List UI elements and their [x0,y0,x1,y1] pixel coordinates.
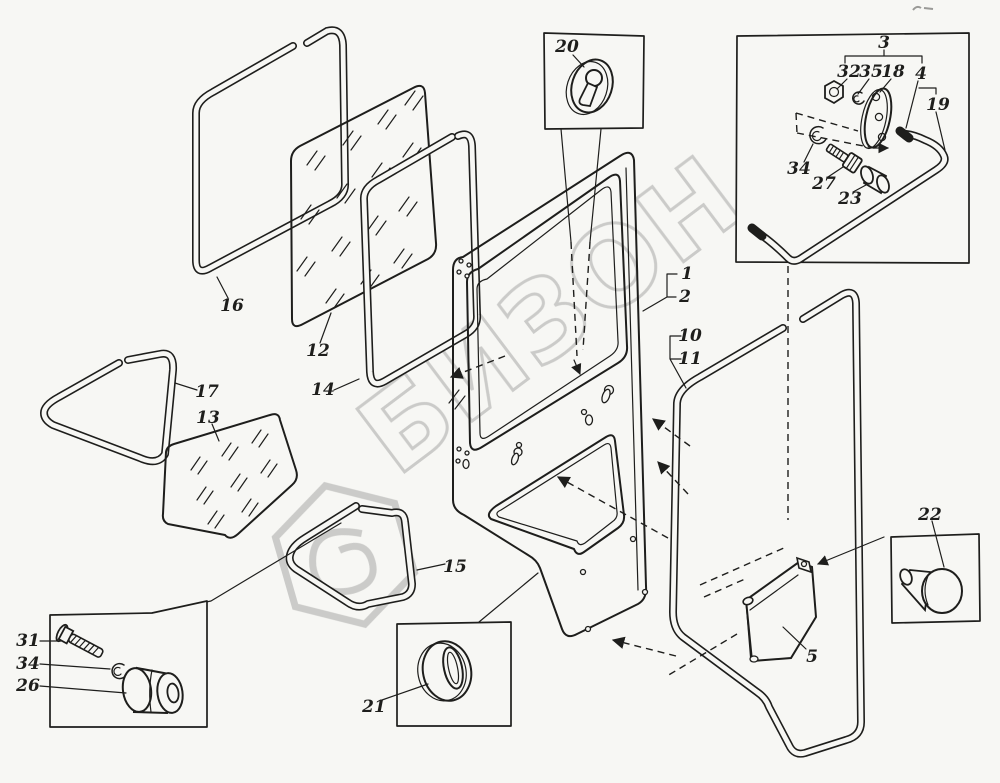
glass-13 [163,414,297,538]
callout-16: 16 [220,296,244,316]
callout-13: 13 [196,408,220,428]
callout-12: 12 [306,341,330,361]
callout-31: 31 [16,631,40,651]
seal-frame-17 [44,354,173,462]
seal-frame-16 [196,30,345,270]
callout-10: 10 [678,326,702,346]
callout-34-lower: 34 [16,654,40,674]
callout-4: 4 [915,64,927,84]
callout-20: 20 [554,37,579,57]
diagram-canvas: БИЗОН [0,0,1000,783]
callout-21: 21 [361,697,386,717]
nut-32 [825,81,843,103]
callout-23: 23 [837,189,862,209]
glass-13-hatching [191,430,277,528]
box21-leader [479,573,538,622]
callout-17: 17 [195,382,219,402]
detail-box-22 [891,534,980,623]
callout-14: 14 [311,380,335,400]
callout-35: 35 [859,62,883,82]
callout-3: 3 [878,33,890,53]
callout-32: 32 [837,62,861,82]
callout-18: 18 [881,62,905,82]
callout-5: 5 [806,647,818,667]
callout-11: 11 [678,349,702,369]
callout-27: 27 [811,174,836,194]
callout-15: 15 [443,557,467,577]
callout-1: 1 [681,264,693,284]
detail-box-26 [50,601,207,727]
callout-19: 19 [926,95,950,115]
scan-artifact [913,7,933,10]
callout-2: 2 [678,287,691,307]
detail-box-21 [397,622,511,726]
parts-diagram-page: БИЗОН [0,0,1000,783]
callout-26: 26 [15,676,40,696]
callout-34-upper: 34 [787,159,811,179]
callout-22: 22 [917,505,942,525]
